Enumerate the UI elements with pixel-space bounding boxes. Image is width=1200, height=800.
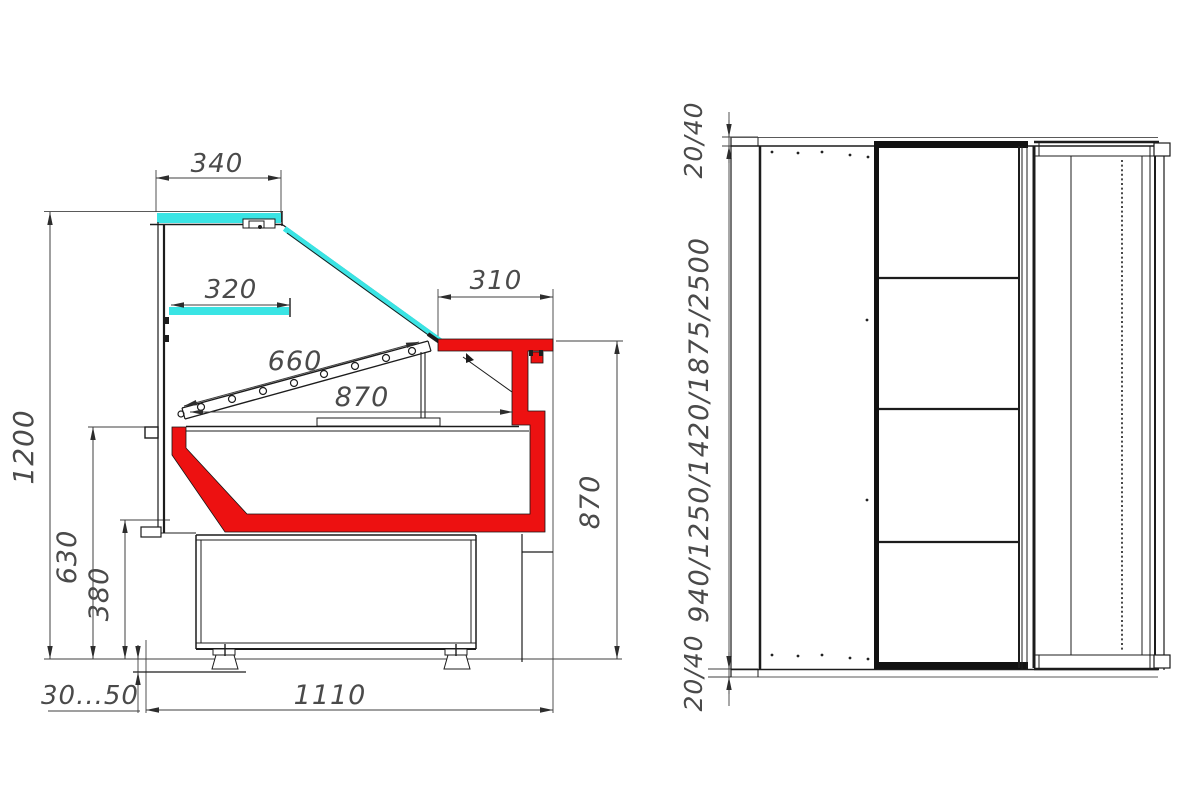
dim-label-1110: 1110 [294,680,367,711]
dim-label-630: 630 [52,530,83,585]
dim-counter-height: 870 [575,341,617,659]
dim-shelf-width: 320 [171,275,290,305]
dim-display-depth: 870 [190,382,513,413]
weld-mark [466,353,474,363]
corner-bracket-top [1154,143,1170,156]
adjustable-foot-right [444,644,470,669]
dim-label-30-50: 30...50 [41,681,139,711]
plan-view: 20/40 940/1250/1420/1875/2500 20/40 [679,101,1170,711]
dim-label-660: 660 [268,346,323,377]
shelf-clip [164,335,169,342]
dim-label-1200: 1200 [7,409,40,484]
dim-label-340: 340 [191,149,244,179]
shelf-clip [164,317,169,324]
dim-label-870-front: 870 [575,475,606,530]
dim-label-310: 310 [470,266,523,296]
dim-overall-height: 1200 [7,212,50,659]
dim-label-870-deck: 870 [335,382,390,413]
base-cabinet [141,527,476,649]
side-section-view: 340 320 310 660 870 1200 630 380 [7,149,623,713]
dim-counter-depth: 310 [438,266,553,297]
dim-label-320: 320 [205,275,258,305]
dim-base-depth: 1110 [146,680,553,711]
rear-skirt [141,527,161,537]
dim-label-380: 380 [84,567,115,622]
wall-bracket [145,427,158,438]
display-well [874,141,1028,669]
fastener-dots [771,151,870,661]
dim-basin-height: 380 [84,520,125,659]
dim-label-module-lengths: 940/1250/1420/1875/2500 [684,237,715,623]
lamp-detail-dot [258,225,262,229]
front-glass-zone [1034,142,1170,670]
adjustable-foot-left [212,644,238,669]
basin-profile [172,339,553,532]
dim-deck-height: 630 [52,427,93,659]
corner-bracket-bottom [1154,655,1170,668]
front-glass [285,229,443,343]
glass-shelf [169,307,289,315]
technical-drawing: 340 320 310 660 870 1200 630 380 [0,0,1200,800]
dim-label-20-40-top: 20/40 [679,101,708,178]
dim-feet-adjust: 30...50 [41,645,139,711]
drain-cover [317,418,440,426]
support-strut [463,357,512,392]
technical-drawing-page: 340 320 310 660 870 1200 630 380 [0,0,1200,800]
dim-canopy-width: 340 [156,149,281,179]
dim-label-20-40-bottom: 20/40 [679,634,708,711]
